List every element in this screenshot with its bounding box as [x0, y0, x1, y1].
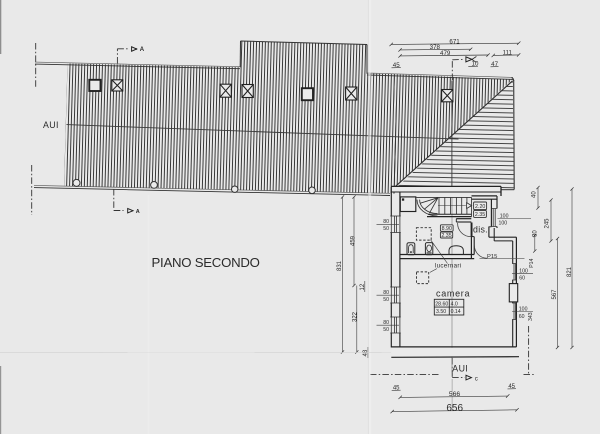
svg-text:AUI: AUI: [43, 120, 59, 130]
svg-text:40: 40: [532, 191, 538, 198]
svg-text:P15: P15: [487, 254, 497, 260]
svg-text:60: 60: [519, 314, 525, 320]
svg-text:camera: camera: [436, 288, 470, 298]
svg-text:30: 30: [533, 230, 539, 237]
svg-text:80: 80: [383, 290, 389, 296]
svg-text:10: 10: [472, 61, 479, 68]
svg-text:2.35: 2.35: [475, 212, 485, 218]
svg-text:A: A: [140, 47, 145, 53]
svg-text:45: 45: [508, 384, 515, 390]
svg-text:3.50: 3.50: [436, 309, 446, 315]
svg-text:28.60: 28.60: [435, 301, 448, 307]
svg-text:4.0: 4.0: [451, 301, 458, 307]
svg-text:821: 821: [567, 266, 573, 277]
svg-text:100: 100: [519, 307, 528, 313]
svg-text:c: c: [475, 375, 478, 382]
svg-text:A: A: [136, 209, 140, 215]
svg-text:100: 100: [499, 220, 508, 226]
svg-text:671: 671: [449, 38, 460, 45]
svg-text:322: 322: [353, 311, 359, 322]
svg-text:47: 47: [491, 61, 498, 68]
svg-text:343: 343: [528, 312, 534, 321]
svg-text:566: 566: [449, 391, 461, 398]
svg-text:45: 45: [393, 386, 400, 392]
svg-text:80: 80: [383, 320, 389, 326]
svg-text:P14: P14: [529, 258, 535, 267]
svg-text:60: 60: [519, 276, 525, 282]
svg-text:479: 479: [440, 50, 451, 57]
svg-text:80: 80: [383, 219, 389, 225]
svg-text:0.14: 0.14: [451, 309, 461, 315]
svg-text:50: 50: [383, 327, 389, 333]
svg-text:656: 656: [446, 403, 463, 414]
svg-text:dis.: dis.: [473, 225, 488, 235]
svg-text:8.90: 8.90: [442, 226, 452, 232]
svg-text:100: 100: [519, 268, 528, 274]
svg-text:567: 567: [552, 289, 558, 300]
svg-text:2.35: 2.35: [441, 233, 451, 239]
svg-text:459: 459: [351, 235, 357, 246]
svg-text:lucernari: lucernari: [435, 263, 461, 270]
svg-text:PIANO SECONDO: PIANO SECONDO: [152, 255, 260, 270]
svg-text:50: 50: [383, 226, 389, 232]
svg-text:245: 245: [545, 218, 551, 229]
svg-text:831: 831: [337, 260, 343, 271]
svg-text:378: 378: [430, 44, 441, 51]
svg-text:111: 111: [503, 50, 513, 57]
svg-text:2.20: 2.20: [475, 204, 485, 210]
svg-text:AUI: AUI: [452, 364, 468, 374]
svg-text:45: 45: [393, 62, 400, 69]
svg-text:12: 12: [360, 283, 366, 290]
svg-text:50: 50: [383, 297, 389, 303]
svg-text:100: 100: [500, 214, 509, 220]
